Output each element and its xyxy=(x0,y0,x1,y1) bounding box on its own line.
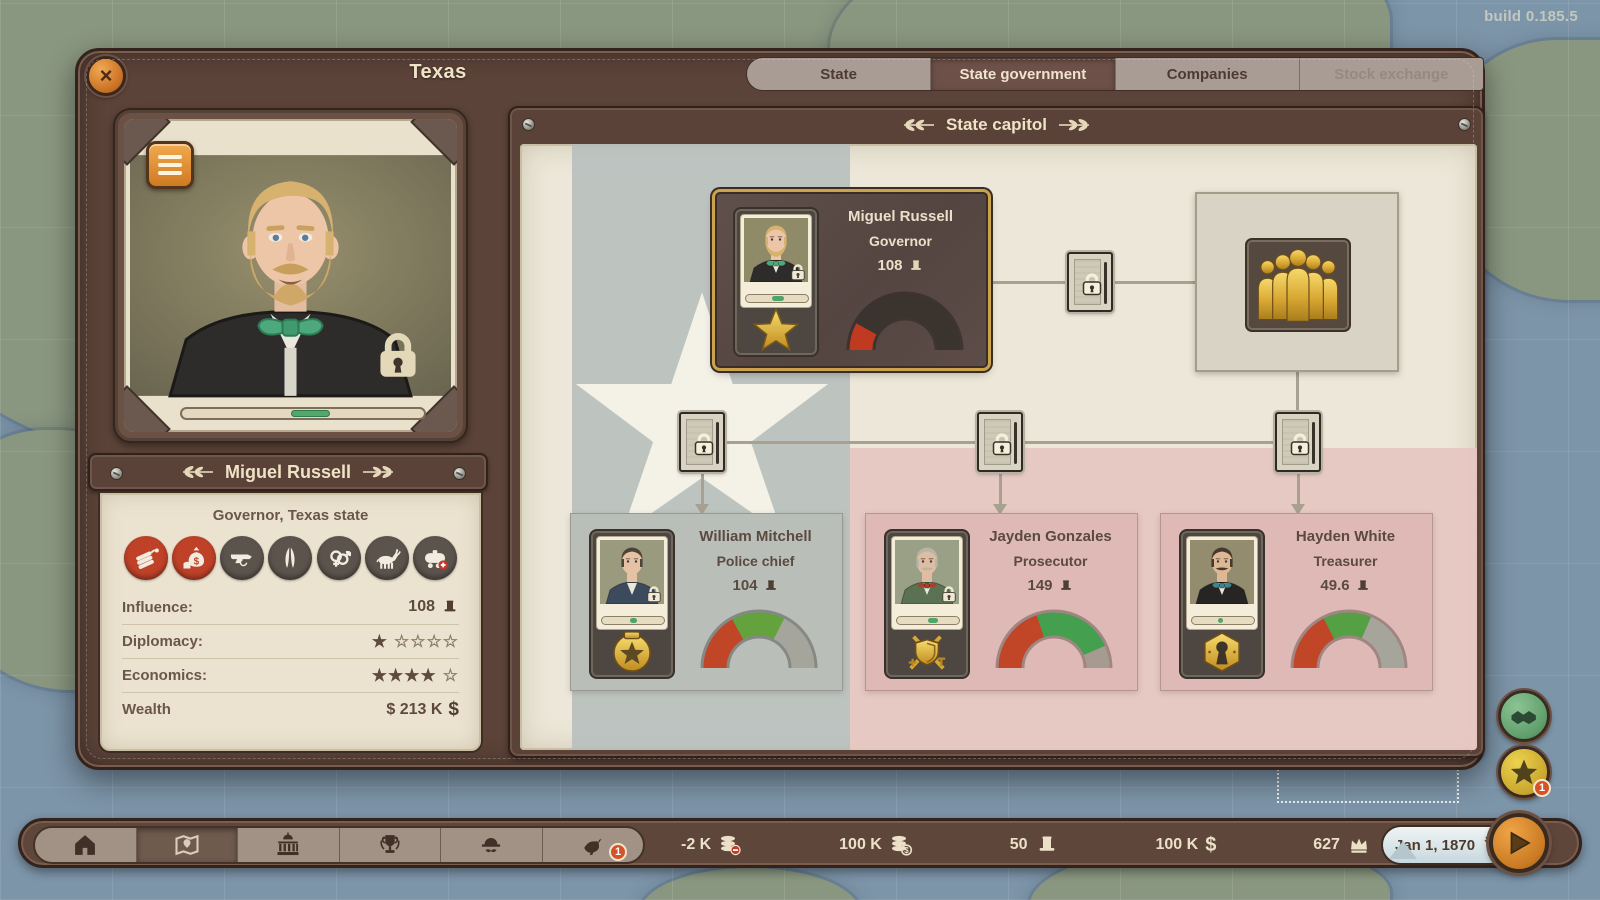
build-version-label: build 0.185.5 xyxy=(1484,8,1578,25)
resource-coins-minus: -2 K xyxy=(681,833,742,857)
lock-icon xyxy=(367,324,429,386)
padlock-icon xyxy=(938,583,960,605)
trait-revolver-icon[interactable] xyxy=(220,536,264,580)
connector-down-1 xyxy=(701,472,704,506)
resource-coins-dollar: 100 K$ xyxy=(839,833,913,857)
relation-gauge xyxy=(988,600,1120,679)
assembly-people-icon xyxy=(1254,247,1342,323)
bottom-hud-bar: 1 -2 K100 K$50100 K$627 Jan 1, 1870 xyxy=(18,818,1582,868)
economics-stars: ★★★★☆ xyxy=(372,666,459,686)
connector-down-2 xyxy=(999,472,1002,506)
keyhole-badge-icon xyxy=(1198,629,1246,675)
resource-dollar: 100 K$ xyxy=(1156,834,1217,857)
law-document-lock-icon[interactable] xyxy=(1067,252,1113,312)
stat-economics: Economics: ★★★★☆ xyxy=(122,658,459,692)
governor-role: Governor xyxy=(821,233,980,249)
achievements-star-button[interactable]: 1 xyxy=(1498,746,1550,798)
screw xyxy=(522,118,535,131)
law-document-lock-icon[interactable] xyxy=(977,412,1023,472)
official-role: Treasurer xyxy=(1265,553,1426,569)
window-title: Texas xyxy=(138,61,738,84)
progress-bar xyxy=(601,616,665,625)
character-portrait-card xyxy=(113,108,468,443)
tab-state-government[interactable]: State government xyxy=(931,58,1115,90)
main-nav: 1 xyxy=(33,826,645,864)
relation-gauge xyxy=(1283,600,1415,679)
law-document-lock-icon[interactable] xyxy=(679,412,725,472)
top-hat-icon xyxy=(1058,578,1074,594)
nav-trophy-button[interactable] xyxy=(340,828,442,862)
tab-state[interactable]: State xyxy=(747,58,931,90)
character-portrait xyxy=(124,119,457,432)
governor-name: Miguel Russell xyxy=(821,208,980,225)
official-card-prosecutor[interactable]: Jayden Gonzales Prosecutor 149 xyxy=(865,513,1138,691)
trait-prayer-icon[interactable] xyxy=(268,536,312,580)
resource-readouts: -2 K100 K$50100 K$627 xyxy=(681,826,1371,864)
ornament-left xyxy=(902,118,936,132)
trait-money-bag-icon[interactable]: $ xyxy=(172,536,216,580)
svg-text:$: $ xyxy=(904,846,909,855)
ornament-right xyxy=(361,465,395,479)
progress-bar xyxy=(896,616,960,625)
official-role: Police chief xyxy=(675,553,836,569)
character-stats: Influence: 108 Diplomacy: ★☆☆☆☆ Economic… xyxy=(122,590,459,726)
top-hat-icon xyxy=(441,598,459,616)
governor-card[interactable]: Miguel Russell Governor 108 xyxy=(715,192,988,368)
trait-icons-row: $ xyxy=(122,536,459,580)
nav-pigeon-button[interactable]: 1 xyxy=(543,828,644,862)
treasurer-portrait xyxy=(1190,540,1254,604)
screw xyxy=(453,467,466,480)
trait-dynamite-icon[interactable] xyxy=(124,536,168,580)
dollar-icon: $ xyxy=(448,699,459,721)
trait-donkey-icon[interactable] xyxy=(365,536,409,580)
notification-badge: 1 xyxy=(609,843,627,861)
stat-influence: Influence: 108 xyxy=(122,590,459,624)
mini-portrait-card xyxy=(884,529,970,679)
end-turn-play-button[interactable] xyxy=(1489,813,1549,873)
mini-portrait-card xyxy=(589,529,675,679)
state-assembly-box[interactable] xyxy=(1195,192,1399,372)
stat-wealth: Wealth $ 213 K $ xyxy=(122,692,459,726)
trait-tank-car-icon[interactable] xyxy=(413,536,457,580)
org-chart-area: Miguel Russell Governor 108 xyxy=(520,144,1477,750)
screw xyxy=(110,467,123,480)
ornament-left xyxy=(181,465,215,479)
top-hat-icon xyxy=(763,578,779,594)
mountain-decoration xyxy=(1389,841,1417,859)
official-name: William Mitchell xyxy=(675,528,836,545)
resource-crown: 627 xyxy=(1313,833,1371,857)
assembly-icon-patch xyxy=(1245,238,1351,332)
connector-down-3 xyxy=(1297,472,1300,506)
tab-stock-exchange[interactable]: Stock exchange xyxy=(1300,58,1483,90)
trait-gender-icon[interactable] xyxy=(317,536,361,580)
law-document-lock-icon[interactable] xyxy=(1275,412,1321,472)
state-capitol-panel: State capitol xyxy=(508,106,1485,758)
tab-bar: StateState governmentCompaniesStock exch… xyxy=(746,57,1484,91)
notification-badge: 1 xyxy=(1533,779,1551,797)
connector-assembly-down xyxy=(1296,372,1299,414)
top-hat-icon xyxy=(908,258,924,274)
official-card-treasurer[interactable]: Hayden White Treasurer 49.6 xyxy=(1160,513,1433,691)
padlock-icon xyxy=(643,583,665,605)
governor-star-badge xyxy=(752,307,800,353)
diplomacy-handshake-button[interactable] xyxy=(1498,690,1550,742)
governor-relation-gauge xyxy=(839,282,971,361)
top-hat-icon xyxy=(1355,578,1371,594)
state-capitol-header: State capitol xyxy=(510,108,1483,142)
handshake-icon xyxy=(1509,701,1539,731)
official-role: Prosecutor xyxy=(970,553,1131,569)
stat-diplomacy: Diplomacy: ★☆☆☆☆ xyxy=(122,624,459,658)
official-name: Hayden White xyxy=(1265,528,1426,545)
police-badge-icon xyxy=(608,629,656,675)
relation-gauge xyxy=(693,600,825,679)
nav-detective-button[interactable] xyxy=(441,828,543,862)
character-name: Miguel Russell xyxy=(225,462,351,483)
progress-bar xyxy=(1191,616,1255,625)
nav-estate-button[interactable] xyxy=(35,828,137,862)
character-info-panel: Governor, Texas state $ Influence: 108 D… xyxy=(98,491,483,753)
shield-swords-icon xyxy=(903,629,951,675)
resource-top-hat: 50 xyxy=(1010,833,1059,857)
character-progress-bar xyxy=(180,407,426,420)
state-capitol-title: State capitol xyxy=(946,115,1047,135)
official-card-police-chief[interactable]: William Mitchell Police chief 104 xyxy=(570,513,843,691)
padlock-icon xyxy=(1077,268,1107,300)
progress-bar xyxy=(745,294,809,303)
state-window: × Texas StateState governmentCompaniesSt… xyxy=(75,48,1485,770)
tab-companies[interactable]: Companies xyxy=(1116,58,1300,90)
padlock-icon xyxy=(787,261,809,283)
nav-map-button[interactable] xyxy=(137,828,239,862)
mini-portrait-card xyxy=(1179,529,1265,679)
character-name-plate: Miguel Russell xyxy=(88,453,488,491)
close-button[interactable]: × xyxy=(86,56,126,96)
diplomacy-stars: ★☆☆☆☆ xyxy=(372,632,459,652)
play-icon xyxy=(1504,828,1534,858)
svg-text:$: $ xyxy=(194,556,200,567)
character-role: Governor, Texas state xyxy=(122,507,459,524)
nav-capitol-button[interactable] xyxy=(238,828,340,862)
official-name: Jayden Gonzales xyxy=(970,528,1131,545)
screw xyxy=(1458,118,1471,131)
ornament-right xyxy=(1057,118,1091,132)
hamburger-menu-button[interactable] xyxy=(146,141,194,189)
governor-mini-portrait-card xyxy=(733,207,819,357)
